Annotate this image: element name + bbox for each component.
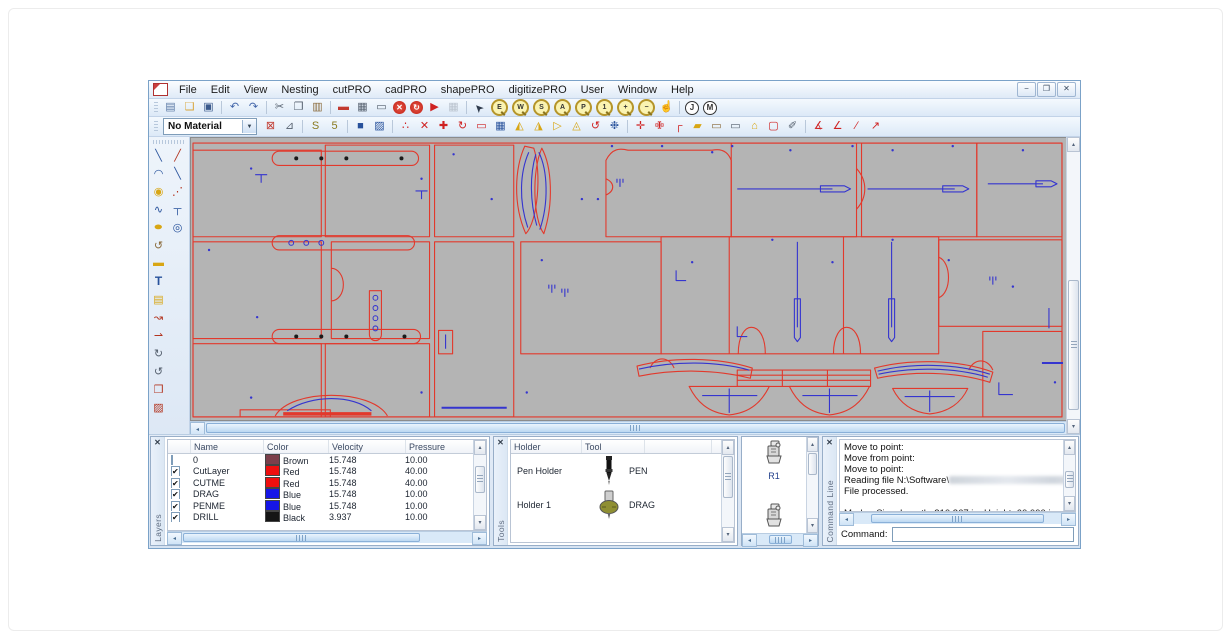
open-shape-icon[interactable]: ▭ [707,118,726,135]
pattern-piece-outline[interactable] [990,276,996,284]
pattern-piece-outline[interactable] [193,150,321,237]
pattern-piece-outline[interactable] [416,191,428,199]
layer-pressure: 40.00 [402,466,473,476]
gallery-hscroll-thumb[interactable] [769,535,792,544]
center-point-tool-icon[interactable]: ◎ [168,218,187,236]
canvas-vscroll-track[interactable] [1067,152,1080,419]
notch-point [691,261,693,263]
paste-icon[interactable]: ▥ [308,99,327,116]
pattern-piece-outline[interactable] [435,145,514,237]
close-icon[interactable]: ✕ [826,437,833,448]
toolbox-grip[interactable] [153,140,185,144]
scroll-right-icon[interactable]: ▸ [472,532,487,545]
vector-tool-icon[interactable]: ⇀ [149,326,168,344]
material-editor-icon[interactable]: ▬ [334,99,353,116]
menu-cadpro[interactable]: cadPRO [378,83,434,97]
ellipse-tool-icon[interactable]: ● [149,218,168,236]
tool-name: DRAG [629,500,655,510]
pattern-piece-outline[interactable] [617,179,623,187]
canvas-hscroll-thumb[interactable] [206,423,1065,433]
close-button[interactable]: ✕ [1057,82,1076,97]
command-hscroll-thumb[interactable] [871,514,1045,523]
layers-horizontal-scrollbar[interactable]: ◂ ▸ [167,531,487,543]
menu-digitizepro[interactable]: digitizePRO [502,83,574,97]
secondary-toolbar-icons: ⊠⊿S5■▨∴✕✚↻▭▦◭◮▷◬↺❉✛✙┌▰▭▭⌂▢✐∡∠∕↗ [261,118,885,135]
notch-point [452,153,454,155]
point-on-line-tool-icon[interactable]: ╱ [168,146,187,164]
redo-icon[interactable]: ↷ [244,99,263,116]
angle-measure-icon[interactable]: ∡ [809,118,828,135]
line-tool-icon[interactable]: ╲ [149,146,168,164]
drill-ring-mark [373,295,378,300]
start-icon[interactable]: ▶ [425,99,444,116]
tools-panel-title: Tools [496,520,506,542]
pattern-piece-outline[interactable] [255,175,267,183]
column-header[interactable]: Pressure [406,440,473,453]
pattern-piece-outline[interactable] [531,154,536,225]
pattern-piece-outline[interactable] [325,145,429,237]
tools-table-header: HolderTool [511,440,721,454]
scroll-down-icon[interactable]: ▾ [1064,496,1075,511]
buttonhole-mark [402,334,406,338]
layers-vscroll-thumb[interactable] [475,466,485,493]
scroll-up-icon[interactable]: ▴ [807,437,818,452]
pattern-piece-outline[interactable] [939,257,949,298]
step-repeat-icon[interactable]: S [306,118,325,135]
pattern-piece-outline[interactable] [521,242,661,354]
minimize-button[interactable]: − [1017,82,1036,97]
tool-holder-row[interactable]: Pen HolderPEN [511,454,721,488]
zoom-scale-icon[interactable]: 1 [596,99,613,116]
join-line-icon[interactable]: ✙ [650,118,669,135]
secondary-toolbar: No Material ▼ ⊠⊿S5■▨∴✕✚↻▭▦◭◮▷◬↺❉✛✙┌▰▭▭⌂▢… [149,117,1080,137]
canvas-vscroll-thumb[interactable] [1068,280,1079,410]
menu-cutpro[interactable]: cutPRO [326,83,379,97]
rectangle-tool-icon[interactable]: ▬ [149,254,168,272]
marquee-icon[interactable]: ▢ [764,118,783,135]
fill-dark-icon[interactable]: ■ [351,118,370,135]
gallery-item-label: R1 [763,471,785,481]
pattern-piece-outline[interactable] [737,370,870,386]
pattern-piece-outline[interactable] [435,242,514,417]
toolbar-separator [805,120,806,133]
notch-point [611,145,613,147]
table-row[interactable]: 0Brown15.74810.00DRAG0.0 [168,454,473,466]
buttonhole-mark [344,334,348,338]
tools-panel: ✕ Tools HolderToolPen HolderPENHolder 1D… [493,436,738,546]
pattern-piece-outline[interactable] [833,327,860,353]
buttonhole-mark [319,156,323,160]
layer-velocity: 15.748 [326,501,402,511]
command-output-line: Move from point: [844,453,1059,464]
docked-panels: ✕ Layers NameColorVelocityPressureTool N… [149,434,1080,548]
break-line-icon[interactable]: ✛ [631,118,650,135]
pattern-marker-drawing [191,138,1066,420]
close-icon[interactable]: ✕ [154,437,161,448]
column-header[interactable] [645,440,712,453]
chevron-down-icon[interactable]: ▼ [242,120,256,133]
notch-point [541,259,543,261]
layers-panel-strip: ✕ Layers [151,437,165,545]
pattern-piece-outline[interactable] [606,149,731,237]
pattern-piece-outline[interactable] [287,399,371,411]
scroll-up-icon[interactable]: ▴ [1064,440,1075,455]
scroll-up-icon[interactable]: ▴ [474,440,486,455]
pattern-piece-outline[interactable] [983,331,1062,417]
zoom-all-icon[interactable]: A [554,99,571,116]
divide-line-tool-icon[interactable]: ⋰ [168,182,187,200]
notch-point [711,151,713,153]
pattern-piece-outline[interactable] [606,179,613,195]
toolbar-separator [627,120,628,133]
fillet-icon[interactable]: ▰ [688,118,707,135]
command-output-line: Marker Size: Length: 210.367 in Height: … [844,508,1059,511]
array-icon[interactable]: ▦ [491,118,510,135]
table-row[interactable]: ✔DRILLBlack3.93710.00R10.0 [168,512,473,524]
edit-points-tool-icon[interactable]: ↝ [149,308,168,326]
text-tool-icon[interactable]: T [149,272,168,290]
scroll-up-icon[interactable]: ▴ [722,440,734,455]
delete-icon[interactable]: ✕ [415,118,434,135]
undo-icon[interactable]: ↶ [225,99,244,116]
gallery-horizontal-scrollbar[interactable]: ◂ ▸ [742,533,818,545]
marker-canvas[interactable] [190,137,1066,421]
color-swatch [265,500,280,511]
tee-point-tool-icon[interactable]: ┬ [168,200,187,218]
toolbox-right-column: ╱╲⋰┬◎ [168,146,187,416]
scroll-left-icon[interactable]: ◂ [742,534,757,547]
zoom-window-icon[interactable]: W [512,99,529,116]
angle-icon[interactable]: ∠ [828,118,847,135]
command-output-line: Move to point: [844,442,1059,453]
layer-color: Black [262,511,326,523]
layer-pressure: 10.00 [402,501,473,511]
column-header[interactable]: Velocity [329,440,406,453]
rotate-icon[interactable]: ↻ [453,118,472,135]
layers-table: NameColorVelocityPressureTool NameLe0Bro… [168,440,473,530]
layer-velocity: 15.748 [326,478,402,488]
layer-name: PENME [190,501,262,511]
machine-icon [763,457,785,469]
pan-hand-icon[interactable]: ☝ [657,99,676,116]
menu-user[interactable]: User [574,83,611,97]
layer-name: CutLayer [190,466,262,476]
canvas-area: ◂ [190,137,1066,434]
open-file-icon[interactable]: ❑ [180,99,199,116]
toolbar-grip[interactable] [154,102,158,114]
circle-tool-icon[interactable]: ◉ [149,182,168,200]
layer-name: 0 [190,455,262,465]
knife-icon[interactable]: ✐ [783,118,802,135]
layers-vertical-scrollbar[interactable]: ▴ ▾ [473,440,486,530]
close-icon[interactable]: ✕ [497,437,504,448]
tools-vscroll-thumb[interactable] [723,456,733,498]
menu-view[interactable]: View [237,83,275,97]
drag-knife-icon [589,489,629,521]
pattern-piece-outline[interactable] [639,363,749,370]
application-window: FileEditViewNestingcutPROcadPROshapePROd… [148,80,1081,549]
menu-file[interactable]: File [172,83,204,97]
move-icon[interactable]: ✚ [434,118,453,135]
zoom-extents-icon[interactable]: E [491,99,508,116]
toolbar-separator [347,120,348,133]
delete-material-icon[interactable]: ⊠ [261,118,280,135]
notch-point [851,145,853,147]
layer-checkbox[interactable]: ✔ [171,489,180,499]
pattern-piece-outline[interactable] [331,268,343,301]
tools-vertical-scrollbar[interactable]: ▴ ▾ [721,440,734,542]
layer-color: Blue [262,488,326,500]
layer-color: Red [262,477,326,489]
canvas-horizontal-scrollbar[interactable]: ◂ [190,421,1066,434]
measure-icon[interactable]: ⊿ [280,118,299,135]
layer-visibility-cell: ✔ [168,466,190,476]
column-header[interactable]: Holder [511,440,582,453]
zoom-selected-icon[interactable]: S [533,99,550,116]
buttonhole-mark [399,156,403,160]
fill-light-icon[interactable]: ▨ [370,118,389,135]
menu-edit[interactable]: Edit [204,83,237,97]
new-drawing-icon[interactable]: ▤ [161,99,180,116]
layer-color: Brown [262,454,326,466]
layer-pressure: 10.00 [402,512,473,522]
menu-help[interactable]: Help [664,83,701,97]
rotate-ccw-tool-icon[interactable]: ↺ [149,362,168,380]
toolbar-grip[interactable] [154,121,158,133]
pattern-piece-outline[interactable] [193,344,321,417]
tool-holder-row[interactable]: Holder 1DRAG [511,488,721,522]
layer-checkbox[interactable]: ✔ [171,478,180,488]
restore-button[interactable]: ❐ [1037,82,1056,97]
notch-point [661,145,663,147]
gallery-item[interactable]: R1 [763,440,785,489]
notch-point [490,198,492,200]
toolbox-left-column: ╲◠◉∿●↺▬T▤↝⇀↻↺❒▨ [149,146,168,416]
command-output-line [844,497,1059,508]
scroll-right-icon[interactable]: ▸ [803,534,818,547]
command-vertical-scrollbar[interactable]: ▴ ▾ [1063,440,1075,511]
polygon-icon[interactable]: ⌂ [745,118,764,135]
pattern-piece-outline[interactable] [857,169,865,210]
material-select[interactable]: No Material ▼ [163,118,257,135]
menu-nesting[interactable]: Nesting [274,83,325,97]
segment-points-icon[interactable]: ↗ [866,118,885,135]
menu-shapepro[interactable]: shapePRO [434,83,502,97]
mirror-vertical-icon[interactable]: ◮ [529,118,548,135]
close-shape-icon[interactable]: ▭ [726,118,745,135]
main-toolbar: ▤❑▣↶↷✂❐▥▬▦▭✕↻▶▦➤EWSAP1+−☝JM [149,99,1080,117]
pattern-piece-outline[interactable] [193,242,321,339]
command-vscroll-thumb[interactable] [1065,471,1074,487]
command-prompt-label: Command: [841,529,887,540]
scroll-grip [630,425,641,431]
corner-icon[interactable]: ┌ [669,118,688,135]
command-output-line: Move to point: [844,464,1059,475]
select-cursor-icon[interactable]: ➤ [470,99,489,116]
color-swatch [265,454,280,465]
drill-ring-mark [373,326,378,331]
pattern-piece-outline[interactable] [977,143,1062,237]
scroll-grip [1071,341,1077,350]
notch-point [250,167,252,169]
pattern-piece-outline[interactable] [939,240,1062,327]
scroll-down-icon[interactable]: ▾ [474,515,486,530]
command-horizontal-scrollbar[interactable]: ◂ ▸ [839,512,1076,524]
save-icon[interactable]: ▣ [199,99,218,116]
pattern-piece-outline[interactable] [193,143,1062,417]
notch-point [597,198,599,200]
drill-ring-mark [373,316,378,321]
rotate-cw-tool-icon[interactable]: ↻ [149,344,168,362]
notch-point [952,145,954,147]
table-row[interactable]: ✔DRAGBlue15.74810.00DRAG0.0 [168,489,473,501]
toolbar-separator [221,101,222,114]
redacted-text [949,476,1063,484]
mirror-horizontal-icon[interactable]: ◭ [510,118,529,135]
segment-icon[interactable]: ∕ [847,118,866,135]
pattern-piece-outline[interactable] [539,152,546,229]
notch-point [420,391,422,393]
menu-items: FileEditViewNestingcutPROcadPROshapePROd… [172,84,701,96]
cut-icon[interactable]: ✂ [270,99,289,116]
layer-checkbox[interactable] [171,455,173,465]
drill-ring-mark [304,240,309,245]
scroll-down-icon[interactable]: ▾ [1067,419,1080,434]
point-edit-icon[interactable]: ∴ [396,118,415,135]
menu-window[interactable]: Window [611,83,664,97]
scroll-up-icon[interactable]: ▴ [1067,137,1080,152]
machine-tool-icon[interactable]: M [703,101,717,115]
notch-point [581,198,583,200]
layer-velocity: 3.937 [326,512,402,522]
table-row[interactable]: ✔CUTMERed15.74840.00DRAG0.0 [168,477,473,489]
layer-pressure: 40.00 [402,478,473,488]
layer-checkbox[interactable]: ✔ [171,512,180,522]
dimension-tool-icon[interactable]: ▤ [149,290,168,308]
notch-point [831,261,833,263]
toolbar-separator [330,101,331,114]
tools-table: HolderToolPen HolderPENHolder 1DRAG [511,440,721,542]
pattern-piece-outline[interactable] [999,382,1013,394]
drawing-toolbox: ╲◠◉∿●↺▬T▤↝⇀↻↺❒▨ ╱╲⋰┬◎ [149,137,190,434]
job-tool-icon[interactable]: J [685,101,699,115]
pattern-piece-outline[interactable] [731,143,856,237]
main-area: ╲◠◉∿●↺▬T▤↝⇀↻↺❒▨ ╱╲⋰┬◎ ◂ ▴ ▾ [149,137,1080,434]
layer-name: DRAG [190,489,262,499]
drill-ring-mark [373,306,378,311]
toolbar-separator [466,101,467,114]
tools-panel-strip: ✕ Tools [494,437,508,545]
scroll-down-icon[interactable]: ▾ [722,527,734,542]
color-swatch [265,511,280,522]
export-marker-icon[interactable]: ▨ [149,398,168,416]
pattern-piece-outline[interactable] [676,270,686,280]
zoom-out-icon[interactable]: − [638,99,655,116]
notch-point [891,149,893,151]
column-header[interactable]: Name [191,440,264,453]
layer-visibility-cell: ✔ [168,478,190,488]
table-row[interactable]: ✔PENMEBlue15.74810.00PEN0.0 [168,500,473,512]
canvas-hscroll-track[interactable] [205,422,1066,434]
restart-icon[interactable]: ↻ [410,101,423,114]
layers-hscroll-thumb[interactable] [183,533,420,542]
step-repeat-add-icon[interactable]: 5 [325,118,344,135]
machine-setup-icon[interactable]: ▭ [372,99,391,116]
gallery-vertical-scrollbar[interactable]: ▴ ▾ [806,437,818,533]
layer-visibility-cell [168,455,190,465]
layer-visibility-cell: ✔ [168,489,190,499]
offset-line-tool-icon[interactable]: ╲ [168,164,187,182]
pattern-piece-outline[interactable] [862,143,977,237]
scroll-left-icon[interactable]: ◂ [167,532,182,545]
send-to-cut-icon[interactable]: ❒ [149,380,168,398]
rotate-ccw-icon[interactable]: ↺ [586,118,605,135]
pause-icon[interactable]: ▦ [444,99,463,116]
table-row[interactable]: ✔CutLayerRed15.74840.00DRAG0.0 [168,466,473,478]
toolbar-separator [266,101,267,114]
command-output-line: File processed. [844,486,1059,497]
column-header[interactable] [168,440,191,453]
canvas-vertical-scrollbar[interactable]: ▴ ▾ [1066,137,1080,434]
command-line-panel-title: Command Line [825,480,835,542]
command-input[interactable] [892,527,1074,542]
layer-velocity: 15.748 [326,489,402,499]
pattern-piece-outline[interactable] [521,152,528,227]
layers-table-header: NameColorVelocityPressureTool NameLe [168,440,473,454]
spray-icon[interactable]: ❉ [605,118,624,135]
pattern-piece-outline[interactable] [549,285,555,293]
notch-point [250,396,252,398]
zoom-previous-icon[interactable]: P [575,99,592,116]
pattern-piece-outline[interactable] [738,327,765,353]
zoom-in-icon[interactable]: + [617,99,634,116]
tool-name: PEN [629,466,648,476]
scroll-down-icon[interactable]: ▾ [807,518,818,533]
layer-color: Red [262,465,326,477]
pattern-piece-outline[interactable] [562,289,568,297]
revolve-tool-icon[interactable]: ↺ [149,236,168,254]
buttonhole-mark [294,156,298,160]
layer-checkbox[interactable]: ✔ [171,466,180,476]
holder-name: Holder 1 [511,500,589,510]
menubar: FileEditViewNestingcutPROcadPROshapePROd… [149,81,1080,99]
pen-tool-icon [589,455,629,487]
plot-setup-icon[interactable]: ▦ [353,99,372,116]
command-line-panel: ✕ Command Line Move to point:Move from p… [822,436,1079,546]
layers-panel: ✕ Layers NameColorVelocityPressureTool N… [150,436,490,546]
properties-icon[interactable]: ▭ [472,118,491,135]
layer-name: CUTME [190,478,262,488]
stop-icon[interactable]: ✕ [393,101,406,114]
layer-name: DRILL [190,512,262,522]
copy-icon[interactable]: ❐ [289,99,308,116]
gallery-item[interactable] [763,503,785,533]
material-select-value: No Material [164,121,242,132]
app-icon [153,83,168,96]
arc-tool-icon[interactable]: ◠ [149,164,168,182]
buttonhole-mark [319,334,323,338]
skew-icon[interactable]: ▷ [548,118,567,135]
align-warning-icon[interactable]: ◬ [567,118,586,135]
column-header[interactable]: Color [264,440,329,453]
layer-checkbox[interactable]: ✔ [171,501,180,511]
gallery-vscroll-thumb[interactable] [808,453,817,475]
color-swatch [265,465,280,476]
polyline-tool-icon[interactable]: ∿ [149,200,168,218]
layer-velocity: 15.748 [326,455,402,465]
column-header[interactable]: Tool [582,440,645,453]
tool-gallery-items: R1 [742,437,806,533]
